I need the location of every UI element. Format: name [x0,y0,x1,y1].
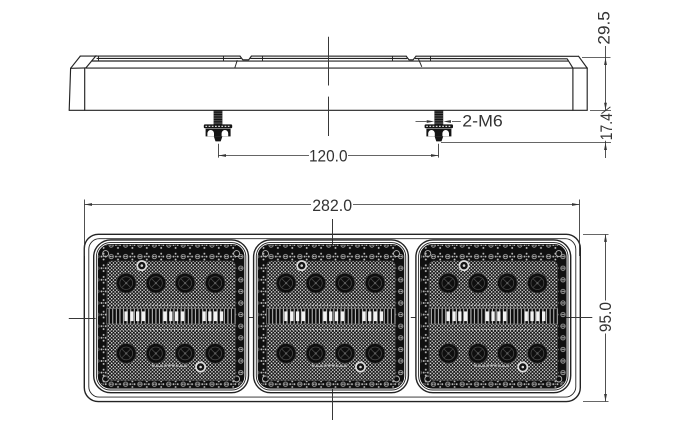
svg-text:17.4: 17.4 [598,113,616,140]
svg-text:2-M6: 2-M6 [462,113,503,131]
svg-text:95.0: 95.0 [597,302,615,332]
svg-text:29.5: 29.5 [596,11,614,44]
svg-text:282.0: 282.0 [312,197,352,215]
svg-text:120.0: 120.0 [309,147,348,165]
